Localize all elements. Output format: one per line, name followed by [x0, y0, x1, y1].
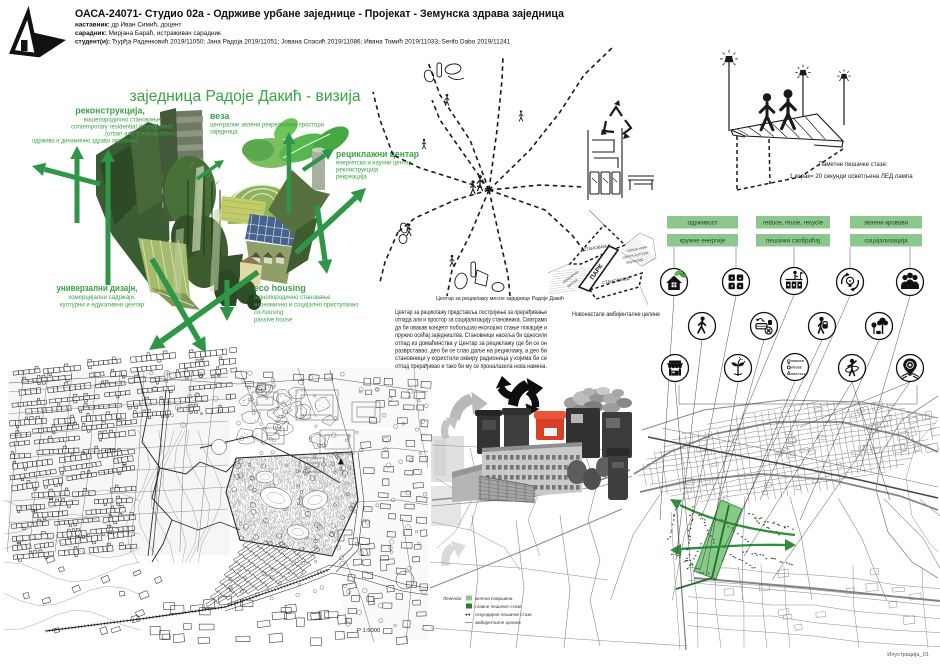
- svg-text:Центар за рециклажу представља: Центар за рециклажу представља постројењ…: [395, 309, 547, 316]
- svg-text:да би овакав концепт побољшао: да би овакав концепт побољшао еколошко с…: [395, 324, 547, 331]
- svg-text:социјализација: социјализација: [865, 238, 909, 245]
- svg-text:зелена површина: зелена површина: [475, 596, 513, 601]
- svg-text:становници у користили оквиру: становници у користили оквиру радионица …: [395, 355, 548, 362]
- svg-text:економично и социјално приступ: економично и социјално приступачно: [254, 303, 359, 309]
- svg-text:реконструкција,: реконструкција,: [75, 106, 145, 116]
- svg-text:отпада али и простор за соција: отпада али и простор за социјализацију с…: [395, 317, 547, 324]
- svg-text:сарадник: Мирјана Бараћ, истра: сарадник: Мирјана Бараћ, истраживач сара…: [75, 29, 221, 37]
- svg-text:веза: веза: [210, 111, 229, 121]
- svg-text:рекреација: рекреација: [336, 175, 367, 181]
- svg-text:Центар за рециклажу месне заје: Центар за рециклажу месне заједнице Радо…: [436, 296, 564, 302]
- svg-text:RECYCLE: RECYCLE: [791, 372, 805, 376]
- svg-text:●●: ●●: [465, 612, 471, 617]
- svg-text:кружне енергије: кружне енергије: [680, 238, 726, 245]
- svg-text:наставник: др Иван Симић, доце: наставник: др Иван Симић, доцент: [75, 21, 182, 29]
- svg-text:С: С: [339, 467, 342, 472]
- svg-text:енергетски и научни центар: енергетски и научни центар: [336, 161, 413, 167]
- svg-text:passive house: passive house: [254, 318, 293, 324]
- svg-text:Легенда:: Легенда:: [442, 596, 463, 601]
- svg-text:реконструкција: реконструкција: [336, 168, 379, 174]
- svg-text:ОАСА-24071- Студио 02а - Одржи: ОАСА-24071- Студио 02а - Одрживе урбане …: [75, 8, 564, 20]
- svg-text:REDUCE: REDUCE: [791, 359, 804, 363]
- svg-text:1 корак= 20 секунди осветљена: 1 корак= 20 секунди осветљена ЛЕД лампа: [789, 173, 913, 180]
- svg-text:отпад из домаћинства у Центар: отпад из домаћинства у Центар за рецикла…: [395, 340, 547, 347]
- svg-text:eco housing: eco housing: [254, 283, 306, 293]
- svg-text:рециклажни центар: рециклажни центар: [336, 149, 420, 159]
- svg-text:вишепородично становање-: вишепородично становање-: [84, 118, 162, 124]
- svg-text:универзални дизајн,: универзални дизајн,: [57, 283, 138, 293]
- svg-text:co-housing: co-housing: [254, 310, 283, 316]
- svg-text:одрживо и динамично здраво окр: одрживо и динамично здраво окружење: [32, 139, 139, 145]
- svg-text:комерцијални садржаји,: комерцијални садржаји,: [69, 295, 136, 301]
- svg-text:пешачки саобраћај: пешачки саобраћај: [766, 238, 820, 245]
- svg-text:Р 1:5000: Р 1:5000: [357, 628, 380, 634]
- svg-text:заједница: заједница: [210, 130, 238, 136]
- svg-text:заједница Радоје Дакић - визиј: заједница Радоје Дакић - визија: [129, 88, 360, 105]
- svg-text:reduce, reuse, recycle: reduce, reuse, recycle: [763, 220, 824, 227]
- svg-text:културни и едукативни центар: културни и едукативни центар: [60, 303, 145, 309]
- svg-text:отпад прерађивао и тако би му: отпад прерађивао и тако би му се пронала…: [395, 363, 547, 370]
- svg-text:студент(и): Ђурђа Раденковић 2: студент(и): Ђурђа Раденковић 2019/11050;…: [75, 38, 511, 46]
- svg-text:амбијенталне целине: амбијенталне целине: [475, 620, 521, 625]
- svg-text:зелени кровови: зелени кровови: [864, 220, 908, 227]
- svg-text:одрживост: одрживост: [687, 220, 717, 227]
- svg-text:централни зелени рекреативни п: централни зелени рекреативни простори: [210, 123, 324, 129]
- svg-text:contemporary residential devel: contemporary residential development: [71, 125, 173, 131]
- svg-text:Илустрација_01: Илустрација_01: [887, 652, 929, 658]
- svg-text:пружио осећај заједништва. Ста: пружио осећај заједништва. Становници на…: [395, 332, 547, 339]
- svg-text:главне пешачке стазе: главне пешачке стазе: [475, 604, 522, 609]
- svg-text:(urban and green qualities): (urban and green qualities): [105, 132, 177, 138]
- svg-text:једнопородично становање: једнопородично становање: [253, 295, 331, 301]
- svg-text:секундарне пешачке стазе: секундарне пешачке стазе: [475, 612, 532, 617]
- svg-text:Новонастале амбијенталне целин: Новонастале амбијенталне целине: [572, 311, 660, 318]
- svg-text:REUSE: REUSE: [791, 366, 801, 370]
- svg-text:разврставао, део би се слао да: разврставао, део би се слао даље на реци…: [395, 348, 547, 355]
- svg-text:Паметне пешачке стазе:: Паметне пешачке стазе:: [818, 161, 887, 168]
- svg-text:СТАНОВАЊЕ: СТАНОВАЊЕ: [601, 276, 630, 285]
